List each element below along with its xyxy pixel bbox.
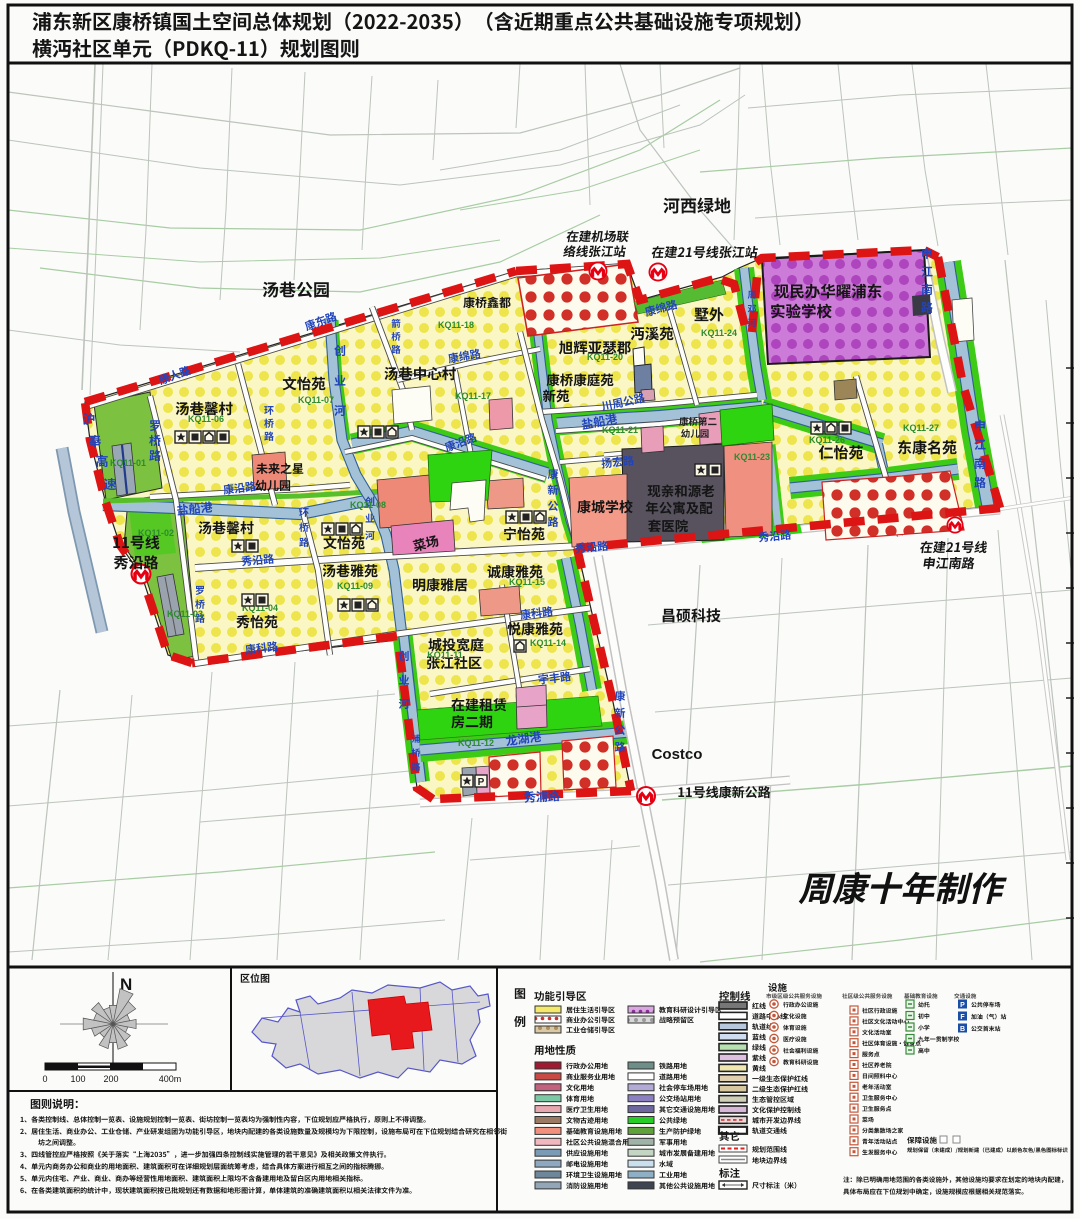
svg-text:KQ11-11: KQ11-11 bbox=[427, 650, 463, 660]
svg-text:KQ11-01: KQ11-01 bbox=[110, 458, 146, 468]
svg-text:400m: 400m bbox=[159, 1074, 182, 1084]
svg-text:0: 0 bbox=[42, 1074, 47, 1084]
svg-text:KQ11-15: KQ11-15 bbox=[509, 577, 545, 587]
svg-text:P: P bbox=[478, 777, 485, 788]
svg-text:KQ11-20: KQ11-20 bbox=[587, 352, 623, 362]
svg-text:KQ11-12: KQ11-12 bbox=[458, 738, 494, 748]
svg-text:KQ11-06: KQ11-06 bbox=[188, 414, 224, 424]
svg-text:KQ11-21: KQ11-21 bbox=[602, 425, 638, 435]
svg-text:KQ11-26: KQ11-26 bbox=[809, 435, 845, 445]
svg-text:100: 100 bbox=[70, 1074, 85, 1084]
svg-text:KQ11-08: KQ11-08 bbox=[350, 500, 386, 510]
svg-text:KQ11-27: KQ11-27 bbox=[903, 423, 939, 433]
svg-text:P: P bbox=[960, 1002, 965, 1009]
svg-text:KQ11-17: KQ11-17 bbox=[455, 391, 491, 401]
svg-text:KQ11-24: KQ11-24 bbox=[701, 328, 737, 338]
svg-text:B: B bbox=[960, 1026, 965, 1033]
svg-text:KQ11-23: KQ11-23 bbox=[734, 452, 770, 462]
svg-text:Costco: Costco bbox=[652, 746, 703, 763]
svg-text:F: F bbox=[960, 1014, 965, 1021]
svg-text:KQ11-18: KQ11-18 bbox=[438, 320, 474, 330]
svg-text:KQ11-02: KQ11-02 bbox=[138, 528, 174, 538]
svg-text:KQ11-14: KQ11-14 bbox=[530, 638, 566, 648]
svg-text:200: 200 bbox=[103, 1074, 118, 1084]
svg-text:KQ11-03: KQ11-03 bbox=[167, 609, 203, 619]
svg-text:KQ11-09: KQ11-09 bbox=[337, 581, 373, 591]
svg-text:KQ11-07: KQ11-07 bbox=[298, 395, 334, 405]
